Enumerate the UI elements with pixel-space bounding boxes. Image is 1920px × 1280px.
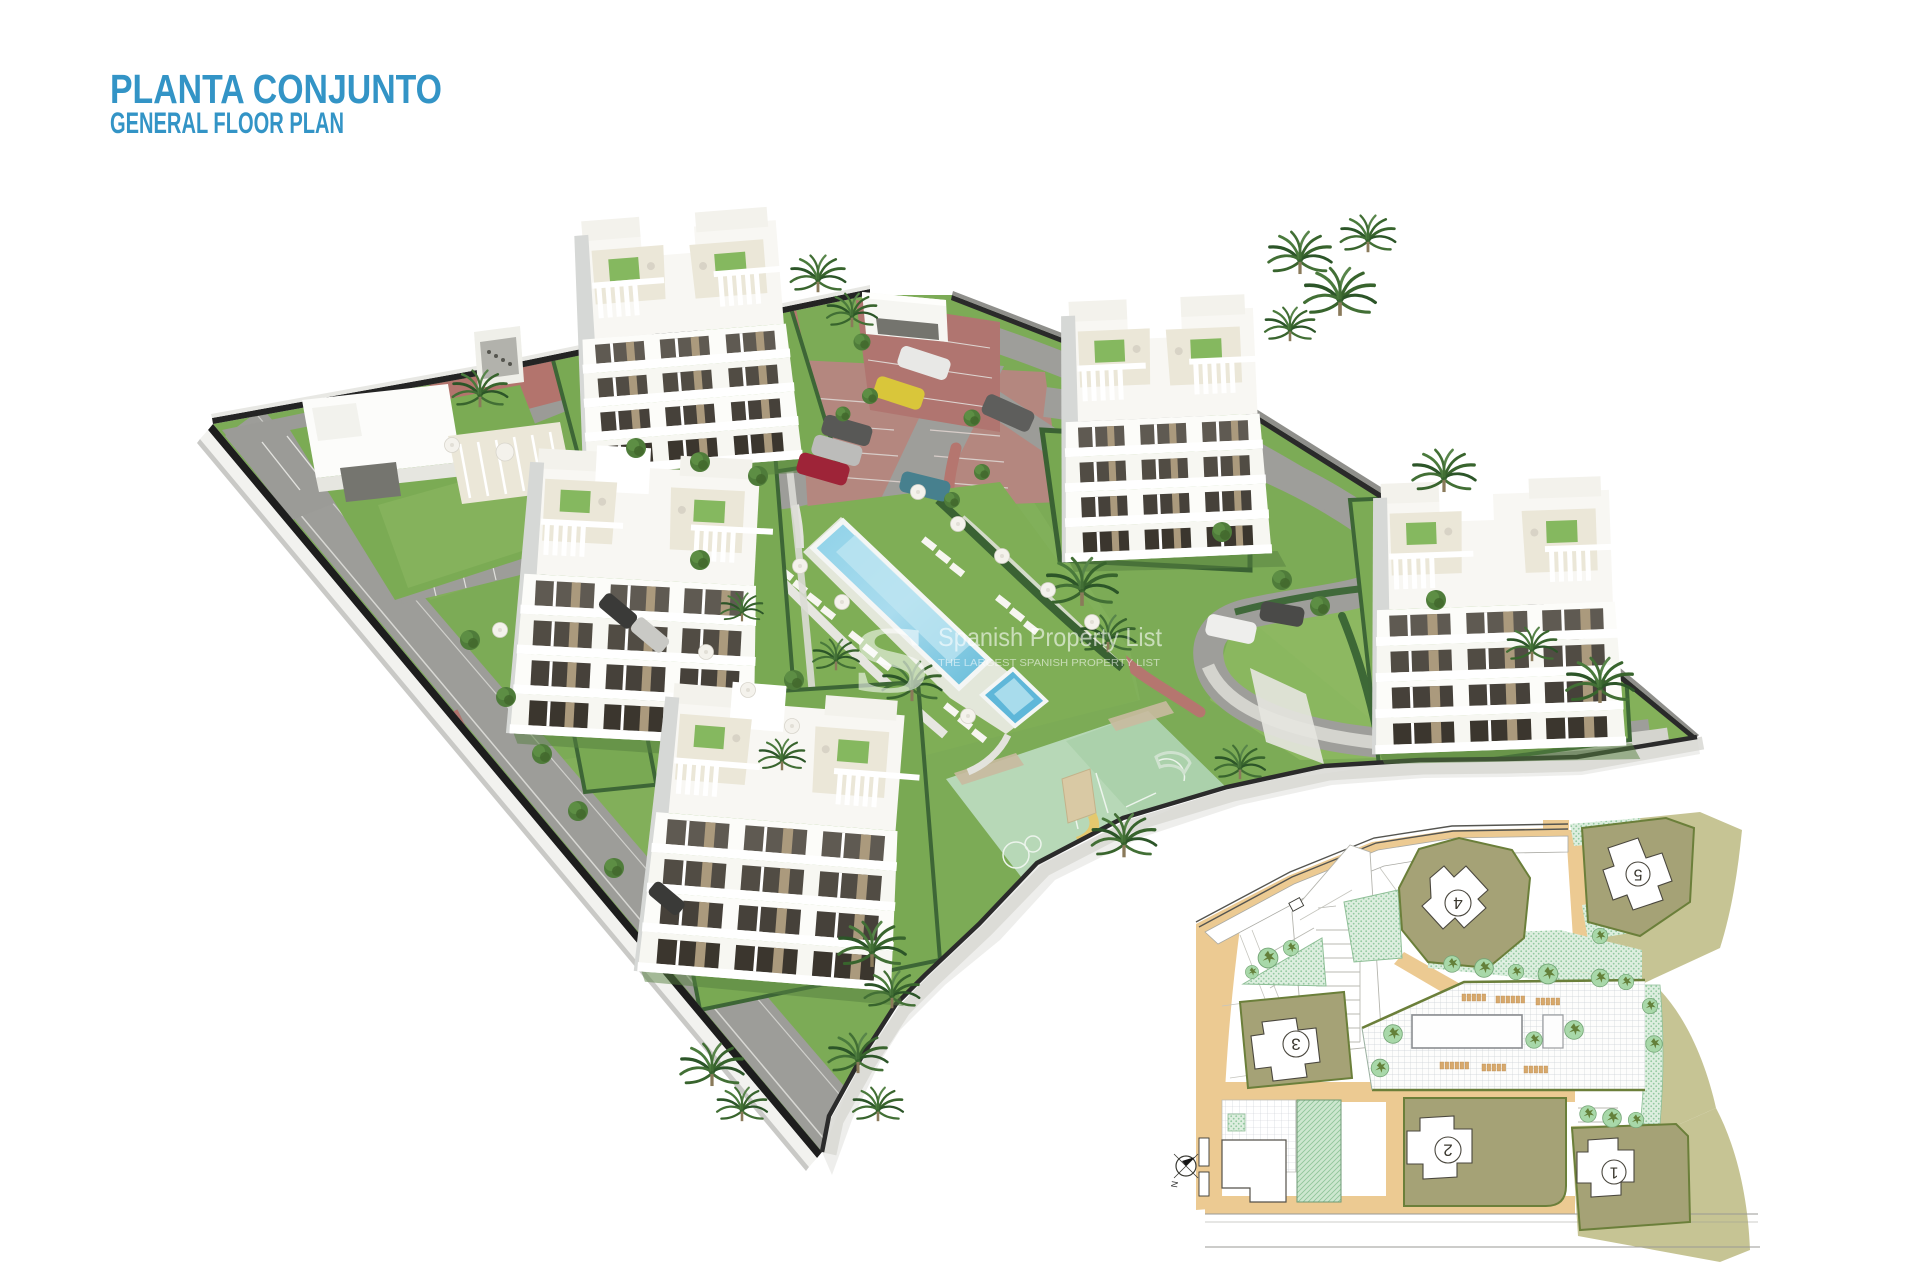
- svg-text:1: 1: [1609, 1164, 1618, 1181]
- svg-text:Spanish Property List: Spanish Property List: [938, 622, 1163, 652]
- svg-text:3: 3: [1291, 1035, 1300, 1054]
- svg-text:5: 5: [1633, 866, 1642, 883]
- svg-text:THE LARGEST SPANISH PROPERTY L: THE LARGEST SPANISH PROPERTY LIST: [938, 657, 1161, 669]
- svg-text:4: 4: [1453, 894, 1462, 913]
- svg-text:PLANTA CONJUNTO: PLANTA CONJUNTO: [110, 66, 442, 112]
- svg-text:S: S: [851, 607, 931, 713]
- svg-text:GENERAL FLOOR PLAN: GENERAL FLOOR PLAN: [110, 107, 344, 140]
- svg-text:2: 2: [1443, 1141, 1452, 1160]
